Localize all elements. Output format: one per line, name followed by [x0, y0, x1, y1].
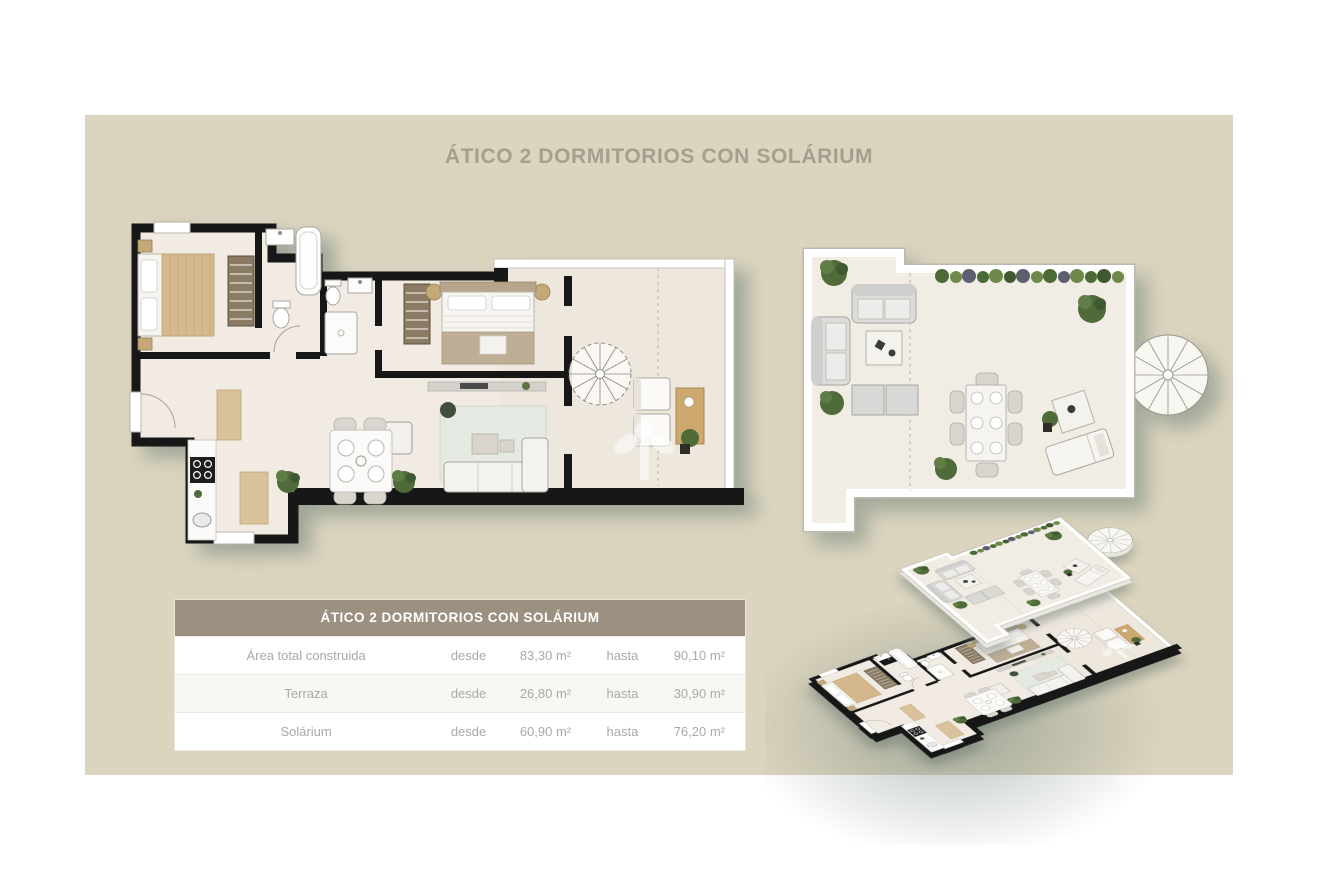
to-value: 30,90 m²: [654, 686, 745, 701]
desde-label: desde: [437, 724, 500, 739]
to-value: 90,10 m²: [654, 648, 745, 663]
main-floor-plan: [128, 212, 748, 547]
hasta-label: hasta: [591, 724, 654, 739]
kitchen-cabinet: [217, 390, 241, 440]
page-title: ÁTICO 2 DORMITORIOS CON SOLÁRIUM: [85, 145, 1233, 169]
from-value: 83,30 m²: [500, 648, 591, 663]
row-label: Área total construida: [175, 648, 437, 663]
hasta-label: hasta: [591, 686, 654, 701]
dining-set: [330, 418, 392, 504]
dining-table: [330, 430, 392, 492]
area-summary-table: ÁTICO 2 DORMITORIOS CON SOLÁRIUM Área to…: [175, 600, 745, 750]
table-row: Área total construida desde 83,30 m² has…: [175, 636, 745, 674]
desde-label: desde: [437, 686, 500, 701]
table-header: ÁTICO 2 DORMITORIOS CON SOLÁRIUM: [175, 600, 745, 636]
desde-label: desde: [437, 648, 500, 663]
wardrobe-1: [228, 256, 254, 326]
brochure-page: ÁTICO 2 DORMITORIOS CON SOLÁRIUM: [0, 0, 1320, 895]
ottoman-2: [886, 385, 918, 415]
coffee-table: [866, 331, 902, 365]
shower: [325, 312, 357, 354]
hasta-label: hasta: [591, 648, 654, 663]
chaise: [522, 438, 548, 492]
kitchen-sink: [193, 513, 211, 527]
island: [240, 472, 268, 524]
row-label: Solárium: [175, 724, 437, 739]
plant: [440, 402, 456, 418]
toilet-1: [273, 308, 289, 328]
spiral-stair-solarium: [1126, 335, 1208, 415]
from-value: 26,80 m²: [500, 686, 591, 701]
to-value: 76,20 m²: [654, 724, 745, 739]
table-row: Terraza desde 26,80 m² hasta 30,90 m²: [175, 674, 745, 712]
cooktop: [190, 457, 215, 483]
spiral-stair-main: [569, 343, 631, 405]
beige-panel: ÁTICO 2 DORMITORIOS CON SOLÁRIUM: [85, 115, 1233, 775]
row-label: Terraza: [175, 686, 437, 701]
ottoman-1: [852, 385, 884, 415]
toilet-2: [326, 287, 340, 305]
coffee-table: [472, 434, 498, 454]
isometric-view: [785, 465, 1225, 795]
from-value: 60,90 m²: [500, 724, 591, 739]
table-row: Solárium desde 60,90 m² hasta 76,20 m²: [175, 712, 745, 750]
